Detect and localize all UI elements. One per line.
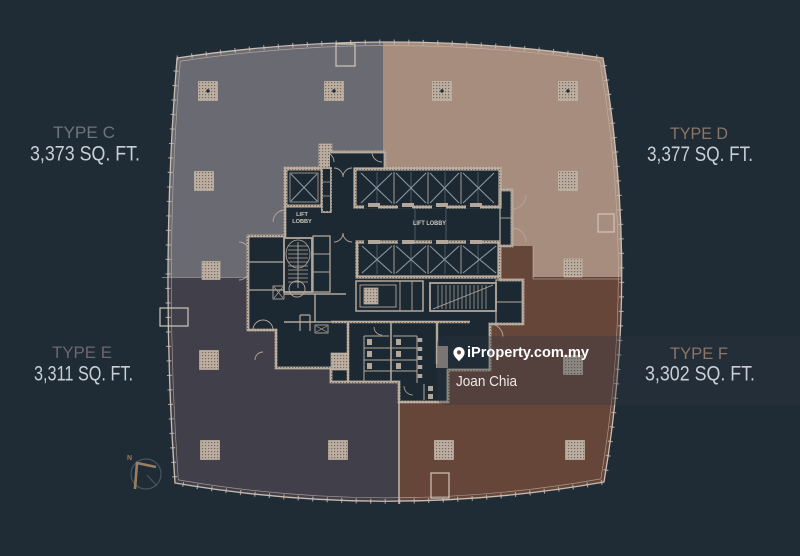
svg-text:TYPE D: TYPE D xyxy=(670,124,728,143)
svg-text:3,302 SQ. FT.: 3,302 SQ. FT. xyxy=(645,363,755,386)
svg-text:TYPE F: TYPE F xyxy=(670,344,728,363)
svg-text:iProperty.com.my: iProperty.com.my xyxy=(467,344,590,361)
svg-text:Joan Chia: Joan Chia xyxy=(456,374,518,390)
svg-text:3,373 SQ. FT.: 3,373 SQ. FT. xyxy=(30,143,140,166)
svg-text:LOBBY: LOBBY xyxy=(292,219,312,225)
svg-text:3,311 SQ. FT.: 3,311 SQ. FT. xyxy=(34,363,133,386)
svg-text:N: N xyxy=(127,455,132,462)
svg-text:TYPE C: TYPE C xyxy=(53,123,115,142)
svg-text:3,377 SQ. FT.: 3,377 SQ. FT. xyxy=(647,143,753,166)
svg-text:LIFT: LIFT xyxy=(296,212,308,218)
svg-text:TYPE E: TYPE E xyxy=(52,343,112,362)
svg-text:LIFT LOBBY: LIFT LOBBY xyxy=(413,220,447,227)
